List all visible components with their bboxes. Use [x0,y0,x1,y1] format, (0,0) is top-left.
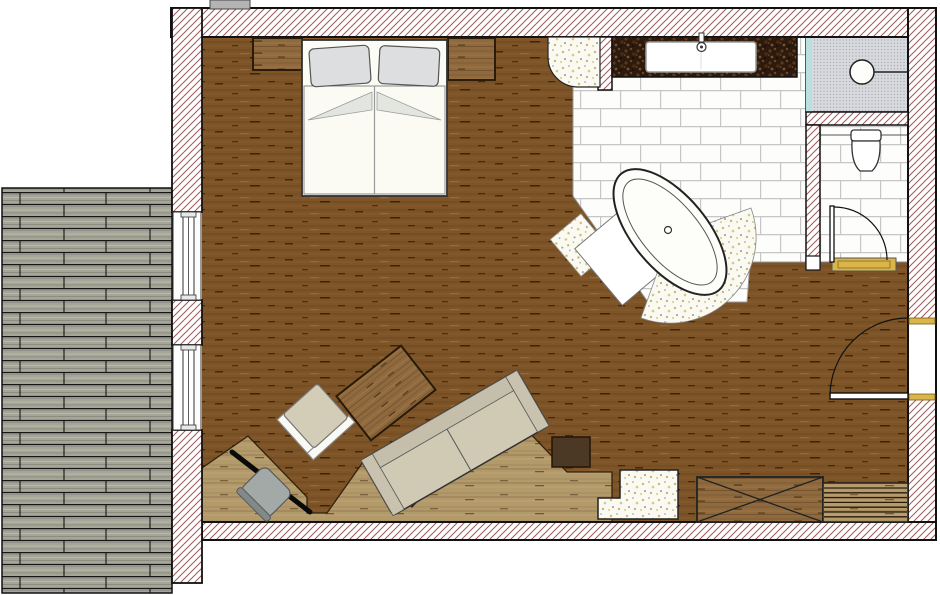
vanity [612,33,797,77]
wall-shower-wc [806,112,908,125]
window-2 [173,345,201,430]
wall-wc-left [806,125,820,262]
pillow-left [309,45,372,87]
window-1 [173,212,201,300]
tub-drain [665,227,672,234]
dark-cabinet [552,437,590,467]
floor-plan [0,0,940,595]
chimney-vent [210,0,250,9]
toilet [851,130,881,171]
wall-left-upper [172,8,202,212]
wall-bottom [202,522,936,540]
wc-door-leaf [830,206,834,262]
double-bed [302,40,447,196]
shower-glass-panel [806,35,812,112]
terrace-deck [2,188,172,593]
door-sill-top [909,318,935,324]
door-sill-bottom [909,394,935,400]
nightstand-right [448,38,495,80]
shower-head-icon [850,60,874,84]
wall-right [908,8,936,540]
pillow-right [378,45,440,86]
wall-left-lower [172,430,202,583]
nightstand-left [253,38,302,70]
entry-door-leaf [830,393,908,399]
wall-left-pier [172,300,202,345]
shower-area [806,35,908,112]
wall-top [171,8,936,37]
faucet-icon [699,33,704,42]
storage-chest [697,477,823,522]
floor-grate [823,483,908,522]
wc-door-jamb [806,256,820,270]
